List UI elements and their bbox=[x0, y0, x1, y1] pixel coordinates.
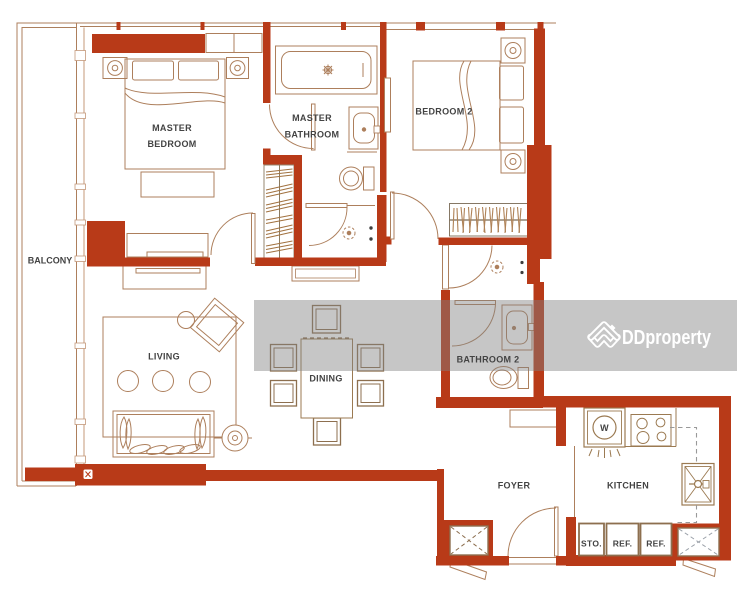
svg-text:KITCHEN: KITCHEN bbox=[607, 481, 649, 491]
svg-text:BALCONY: BALCONY bbox=[28, 256, 73, 266]
svg-text:BEDROOM 2: BEDROOM 2 bbox=[415, 107, 472, 117]
svg-text:REF.: REF. bbox=[646, 539, 666, 549]
svg-text:BATHROOM: BATHROOM bbox=[285, 130, 340, 140]
svg-text:W: W bbox=[600, 423, 609, 433]
svg-text:DDproperty: DDproperty bbox=[622, 326, 711, 349]
svg-text:LIVING: LIVING bbox=[148, 352, 180, 362]
svg-text:MASTER: MASTER bbox=[292, 113, 332, 123]
svg-text:DINING: DINING bbox=[309, 374, 342, 384]
svg-text:FOYER: FOYER bbox=[498, 481, 531, 491]
svg-text:MASTER: MASTER bbox=[152, 123, 192, 133]
svg-text:REF.: REF. bbox=[613, 539, 633, 549]
svg-text:BATHROOM 2: BATHROOM 2 bbox=[457, 355, 520, 365]
svg-text:BEDROOM: BEDROOM bbox=[147, 139, 196, 149]
svg-text:STO.: STO. bbox=[581, 539, 602, 549]
